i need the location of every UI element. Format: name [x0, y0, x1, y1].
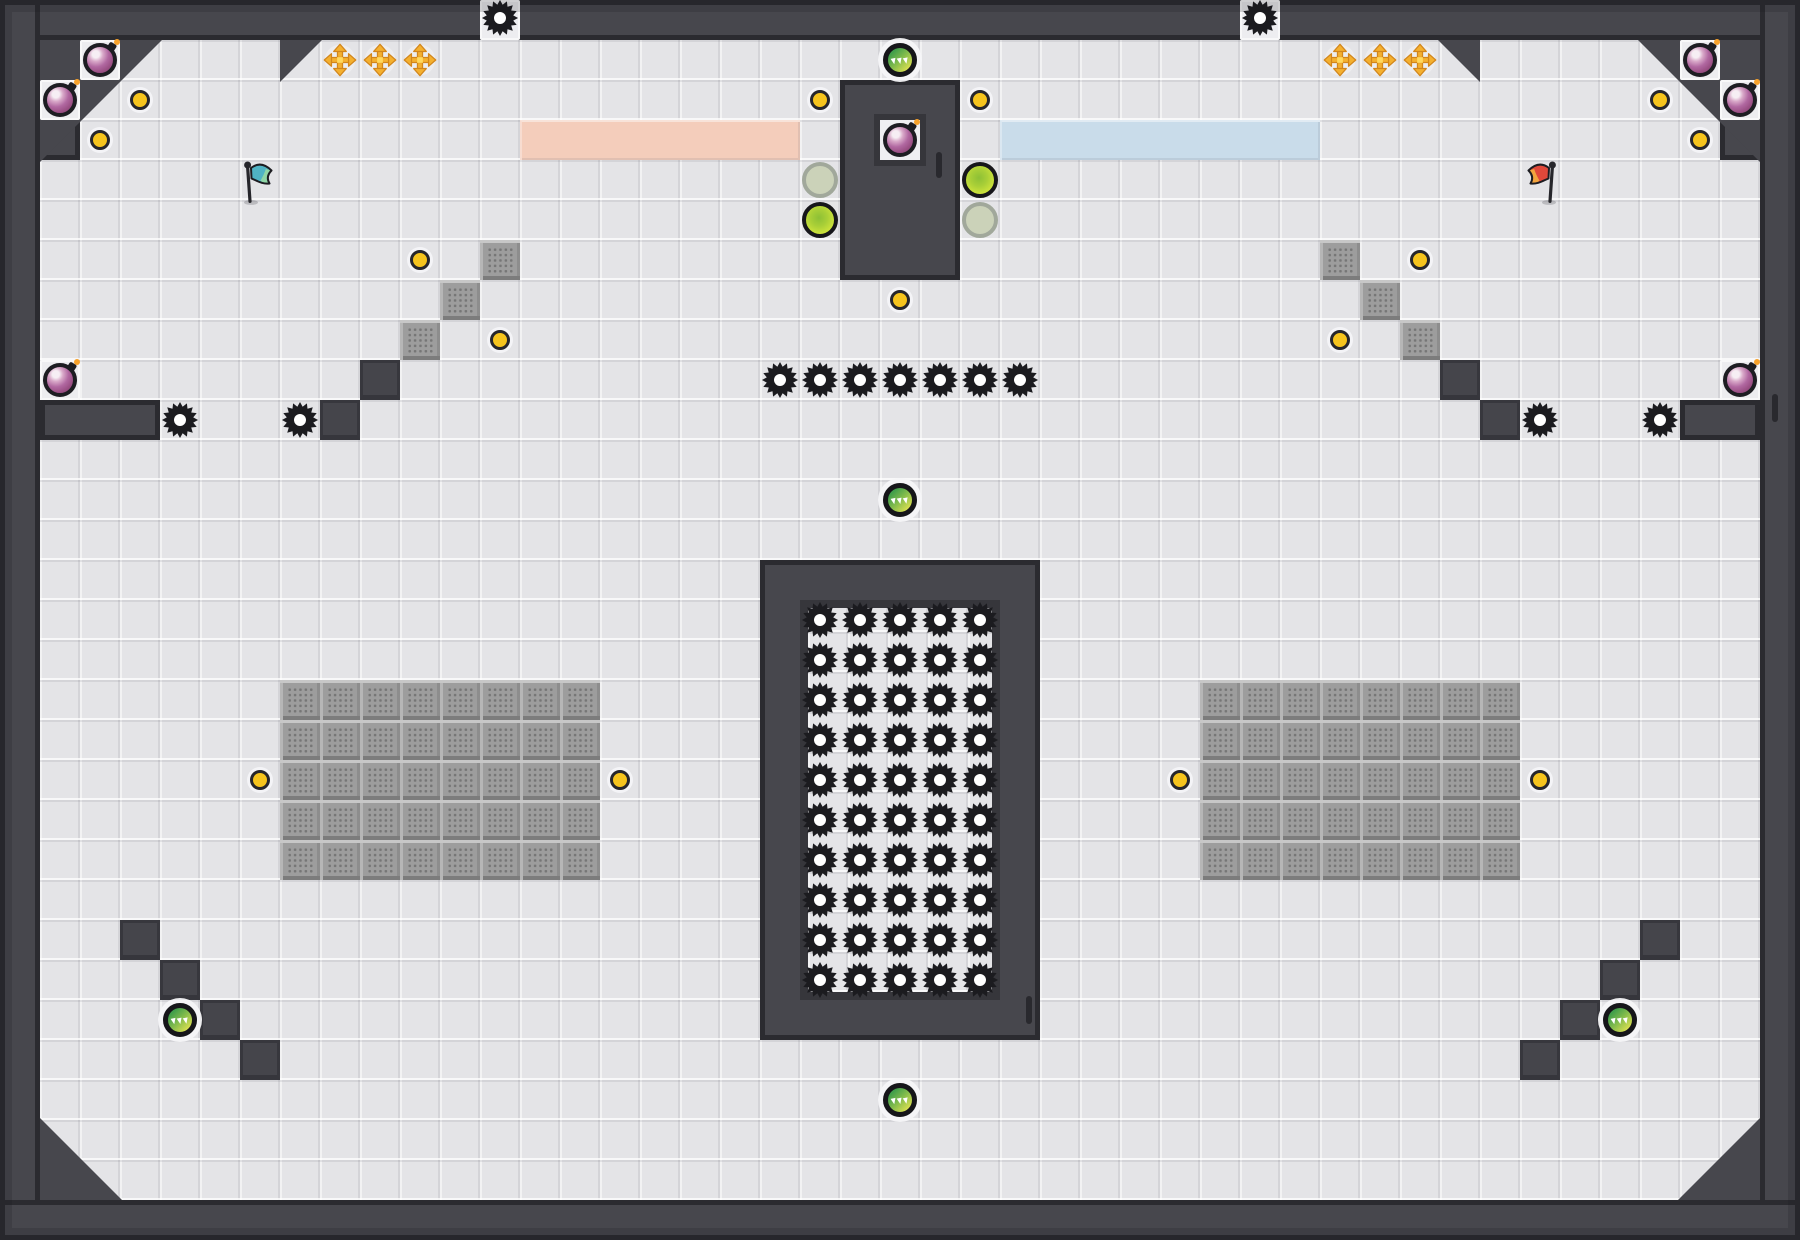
gear-hazard-icon[interactable]: [801, 601, 839, 639]
gear-hazard-icon[interactable]: [921, 921, 959, 959]
crate-block: [320, 680, 360, 720]
wall-block: [1560, 1000, 1600, 1040]
crate-block: [1240, 840, 1280, 880]
gear-hazard-icon[interactable]: [801, 721, 839, 759]
team-strip-blue: [1000, 120, 1320, 160]
crate-block: [1360, 800, 1400, 840]
bomb-pickup-icon[interactable]: [83, 43, 117, 77]
gear-hazard-icon[interactable]: [801, 681, 839, 719]
crate-block: [1480, 760, 1520, 800]
corner-wedge-bottom-left: [40, 1118, 122, 1200]
crate-block: [320, 840, 360, 880]
crate-block: [1360, 680, 1400, 720]
powerup-cross-icon[interactable]: [402, 42, 438, 78]
crate-block: [1200, 760, 1240, 800]
gold-dot-pickup[interactable]: [887, 287, 913, 313]
crate-block: [440, 280, 480, 320]
gear-hazard-icon[interactable]: [921, 721, 959, 759]
crate-block: [1440, 800, 1480, 840]
crate-block: [440, 760, 480, 800]
crate-block: [1400, 840, 1440, 880]
gear-hazard-icon[interactable]: [881, 921, 919, 959]
gear-hazard-icon[interactable]: [881, 961, 919, 999]
game-arena[interactable]: [0, 0, 1800, 1240]
wall-block: [240, 1040, 280, 1080]
gear-hazard-icon[interactable]: [961, 921, 999, 959]
gear-hazard-icon[interactable]: [801, 361, 839, 399]
crate-block: [1240, 680, 1280, 720]
right-ledge: [1680, 400, 1760, 440]
gold-dot-pickup[interactable]: [87, 127, 113, 153]
crate-block: [1360, 840, 1400, 880]
gear-hazard-icon[interactable]: [881, 361, 919, 399]
crate-block: [1200, 800, 1240, 840]
powerup-cross-icon[interactable]: [362, 42, 398, 78]
crate-block: [560, 840, 600, 880]
gear-hazard-icon[interactable]: [961, 841, 999, 879]
gear-hazard-icon[interactable]: [841, 601, 879, 639]
crate-block: [360, 720, 400, 760]
slit-mark: [1026, 996, 1032, 1024]
crate-block: [480, 800, 520, 840]
portal-orb-icon[interactable]: [883, 483, 917, 517]
bounce-pad-inactive[interactable]: [802, 162, 838, 198]
slit-mark: [936, 152, 942, 178]
crate-block: [440, 800, 480, 840]
gold-dot-pickup[interactable]: [967, 87, 993, 113]
crate-block: [1440, 840, 1480, 880]
crate-block: [400, 840, 440, 880]
wall-tooth-left: [280, 40, 322, 82]
gear-hazard-icon[interactable]: [881, 841, 919, 879]
gear-hazard-icon[interactable]: [841, 961, 879, 999]
gear-hazard-icon[interactable]: [801, 761, 839, 799]
crate-block: [480, 720, 520, 760]
crate-block: [1280, 760, 1320, 800]
wall-block: [360, 360, 400, 400]
gold-dot-pickup[interactable]: [1527, 767, 1553, 793]
crate-block: [1200, 680, 1240, 720]
crate-block: [480, 680, 520, 720]
gear-hazard-icon[interactable]: [961, 761, 999, 799]
crate-block: [1320, 800, 1360, 840]
top-center-box: [840, 80, 960, 280]
powerup-cross-icon[interactable]: [1322, 42, 1358, 78]
bomb-pickup-icon[interactable]: [883, 123, 917, 157]
crate-block: [1480, 680, 1520, 720]
crate-block: [480, 840, 520, 880]
crate-block: [1240, 720, 1280, 760]
gear-hazard-icon[interactable]: [921, 961, 959, 999]
gear-hazard-icon[interactable]: [1001, 361, 1039, 399]
powerup-cross-icon[interactable]: [1362, 42, 1398, 78]
top-wall: [0, 0, 1800, 40]
gear-hazard-icon[interactable]: [841, 641, 879, 679]
wall-block: [1640, 920, 1680, 960]
crate-block: [400, 720, 440, 760]
wall-block: [160, 960, 200, 1000]
gear-hazard-icon[interactable]: [1641, 401, 1679, 439]
crate-block: [1400, 760, 1440, 800]
gear-hazard-icon[interactable]: [961, 961, 999, 999]
gear-hazard-icon[interactable]: [961, 881, 999, 919]
wall-block: [1480, 400, 1520, 440]
bomb-pickup-icon[interactable]: [1723, 83, 1757, 117]
crate-block: [520, 720, 560, 760]
gear-hazard-icon[interactable]: [1521, 401, 1559, 439]
gear-hazard-icon[interactable]: [161, 401, 199, 439]
gear-hazard-icon[interactable]: [841, 761, 879, 799]
crate-block: [320, 760, 360, 800]
gear-hazard-icon[interactable]: [921, 881, 959, 919]
gear-hazard-icon[interactable]: [961, 681, 999, 719]
crate-block: [280, 760, 320, 800]
gear-hazard-icon[interactable]: [921, 841, 959, 879]
gold-dot-pickup[interactable]: [1647, 87, 1673, 113]
gear-hazard-icon[interactable]: [961, 801, 999, 839]
gear-hazard-icon[interactable]: [841, 361, 879, 399]
gear-hazard-icon[interactable]: [921, 681, 959, 719]
gear-hazard-icon[interactable]: [841, 921, 879, 959]
wall-block: [120, 920, 160, 960]
gear-hazard-icon[interactable]: [921, 361, 959, 399]
crate-block: [1320, 720, 1360, 760]
gear-hazard-icon[interactable]: [1241, 0, 1279, 37]
crate-block: [1280, 680, 1320, 720]
gear-hazard-icon[interactable]: [281, 401, 319, 439]
portal-orb-icon[interactable]: [883, 1083, 917, 1117]
crate-block: [280, 800, 320, 840]
flag-teal-icon[interactable]: [238, 158, 282, 202]
gold-dot-pickup[interactable]: [487, 327, 513, 353]
crate-block: [520, 840, 560, 880]
gear-hazard-icon[interactable]: [761, 361, 799, 399]
crate-block: [360, 800, 400, 840]
bounce-pad[interactable]: [802, 202, 838, 238]
gear-hazard-icon[interactable]: [881, 801, 919, 839]
powerup-cross-icon[interactable]: [322, 42, 358, 78]
gear-hazard-icon[interactable]: [881, 601, 919, 639]
crate-block: [280, 680, 320, 720]
crate-block: [480, 760, 520, 800]
bottom-wall: [0, 1200, 1800, 1240]
crate-block: [520, 760, 560, 800]
gear-hazard-icon[interactable]: [881, 881, 919, 919]
team-strip-pink: [520, 120, 800, 160]
wall-block: [320, 400, 360, 440]
crate-block: [400, 800, 440, 840]
crate-block: [1480, 720, 1520, 760]
crate-block: [560, 760, 600, 800]
gear-hazard-icon[interactable]: [801, 641, 839, 679]
crate-block: [1200, 840, 1240, 880]
gear-hazard-icon[interactable]: [801, 921, 839, 959]
bomb-pickup-icon[interactable]: [43, 363, 77, 397]
wall-block: [200, 1000, 240, 1040]
bomb-pickup-icon[interactable]: [1683, 43, 1717, 77]
gear-hazard-icon[interactable]: [881, 641, 919, 679]
crate-block: [560, 680, 600, 720]
crate-block: [440, 720, 480, 760]
crate-block: [1360, 720, 1400, 760]
gear-hazard-icon[interactable]: [881, 761, 919, 799]
gold-dot-pickup[interactable]: [607, 767, 633, 793]
crate-block: [1240, 800, 1280, 840]
crate-block: [440, 840, 480, 880]
portal-orb-icon[interactable]: [883, 43, 917, 77]
crate-block: [1400, 800, 1440, 840]
gear-hazard-icon[interactable]: [961, 641, 999, 679]
slit-mark: [1772, 394, 1778, 422]
wall-block: [1600, 960, 1640, 1000]
gear-hazard-icon[interactable]: [961, 601, 999, 639]
wall-block: [1520, 1040, 1560, 1080]
gold-dot-pickup[interactable]: [1407, 247, 1433, 273]
gold-dot-pickup[interactable]: [407, 247, 433, 273]
gear-hazard-icon[interactable]: [801, 881, 839, 919]
right-wall: [1760, 0, 1800, 1240]
crate-block: [1320, 680, 1360, 720]
crate-block: [360, 680, 400, 720]
crate-block: [1400, 680, 1440, 720]
gold-dot-pickup[interactable]: [127, 87, 153, 113]
gear-hazard-icon[interactable]: [481, 0, 519, 37]
crate-block: [1480, 800, 1520, 840]
crate-block: [1320, 840, 1360, 880]
crate-block: [320, 720, 360, 760]
corner-wedge-bottom-right: [1678, 1118, 1760, 1200]
gold-dot-pickup[interactable]: [1167, 767, 1193, 793]
gear-hazard-icon[interactable]: [801, 841, 839, 879]
gear-hazard-icon[interactable]: [881, 721, 919, 759]
gear-hazard-icon[interactable]: [841, 881, 879, 919]
left-ledge: [40, 400, 160, 440]
crate-block: [1360, 760, 1400, 800]
crate-block: [520, 680, 560, 720]
crate-block: [1320, 240, 1360, 280]
crate-block: [480, 240, 520, 280]
crate-block: [360, 840, 400, 880]
gear-hazard-icon[interactable]: [921, 761, 959, 799]
gold-dot-pickup[interactable]: [1687, 127, 1713, 153]
gold-dot-pickup[interactable]: [247, 767, 273, 793]
crate-block: [280, 840, 320, 880]
gear-hazard-icon[interactable]: [841, 721, 879, 759]
crate-block: [320, 800, 360, 840]
crate-block: [1280, 840, 1320, 880]
portal-orb-icon[interactable]: [163, 1003, 197, 1037]
crate-block: [400, 320, 440, 360]
crate-block: [1280, 720, 1320, 760]
flag-red-icon[interactable]: [1518, 158, 1562, 202]
crate-block: [1440, 680, 1480, 720]
crate-block: [1360, 280, 1400, 320]
crate-block: [520, 800, 560, 840]
gear-hazard-icon[interactable]: [881, 681, 919, 719]
crate-block: [1280, 800, 1320, 840]
powerup-cross-icon[interactable]: [1402, 42, 1438, 78]
crate-block: [440, 680, 480, 720]
bomb-pickup-icon[interactable]: [1723, 363, 1757, 397]
crate-block: [360, 760, 400, 800]
crate-block: [1440, 720, 1480, 760]
crate-block: [1200, 720, 1240, 760]
crate-block: [1320, 760, 1360, 800]
crate-block: [400, 680, 440, 720]
crate-block: [1240, 760, 1280, 800]
gold-dot-pickup[interactable]: [807, 87, 833, 113]
gear-hazard-icon[interactable]: [801, 961, 839, 999]
gear-hazard-icon[interactable]: [841, 841, 879, 879]
left-wall: [0, 0, 40, 1240]
crate-block: [560, 720, 600, 760]
crate-block: [1440, 760, 1480, 800]
crate-block: [1480, 840, 1520, 880]
crate-block: [400, 760, 440, 800]
gear-hazard-icon[interactable]: [921, 801, 959, 839]
gold-dot-pickup[interactable]: [1327, 327, 1353, 353]
wall-block: [1440, 360, 1480, 400]
bomb-pickup-icon[interactable]: [43, 83, 77, 117]
crate-block: [1400, 320, 1440, 360]
gear-hazard-icon[interactable]: [841, 801, 879, 839]
crate-block: [280, 720, 320, 760]
gear-hazard-icon[interactable]: [801, 801, 839, 839]
gear-hazard-icon[interactable]: [841, 681, 879, 719]
gear-hazard-icon[interactable]: [921, 601, 959, 639]
gear-hazard-icon[interactable]: [961, 361, 999, 399]
portal-orb-icon[interactable]: [1603, 1003, 1637, 1037]
gear-hazard-icon[interactable]: [921, 641, 959, 679]
wall-tooth-right: [1438, 40, 1480, 82]
gear-hazard-icon[interactable]: [961, 721, 999, 759]
crate-block: [560, 800, 600, 840]
bounce-pad-inactive[interactable]: [962, 202, 998, 238]
bounce-pad[interactable]: [962, 162, 998, 198]
crate-block: [1400, 720, 1440, 760]
